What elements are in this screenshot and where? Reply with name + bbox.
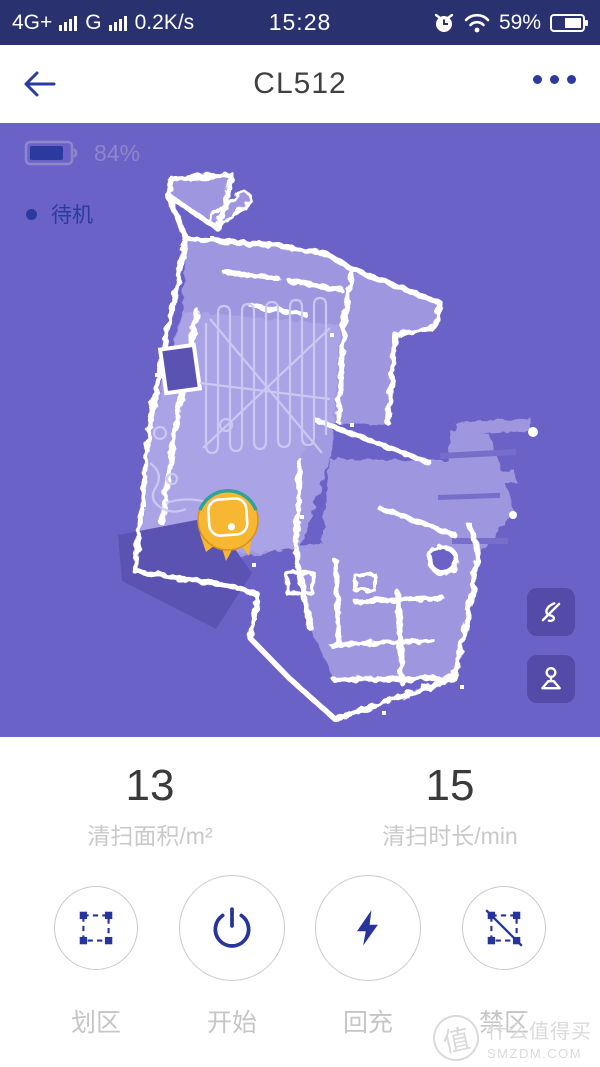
stat-duration: 15 清扫时长/min (300, 761, 600, 857)
duration-value: 15 (300, 761, 600, 811)
robot-battery-icon (24, 139, 80, 167)
wifi-icon (464, 13, 490, 33)
locate-robot-button[interactable] (527, 655, 575, 703)
duration-label: 清扫时长/min (300, 817, 600, 851)
action-forbidden-zone: 禁区 (436, 873, 572, 1039)
alarm-clock-icon (433, 12, 455, 34)
edit-off-icon (538, 599, 564, 625)
status-bar-right: 59% (433, 11, 588, 35)
action-bar: 划区 开始 回充 (0, 857, 600, 1039)
map-section: 84% 待机 (0, 123, 600, 737)
area-value: 13 (0, 761, 300, 811)
robot-battery-indicator: 84% (24, 139, 140, 167)
more-options-icon[interactable] (533, 75, 576, 84)
start-button[interactable] (179, 875, 285, 981)
battery-percent-label: 59% (499, 11, 541, 35)
lightning-icon (346, 906, 390, 950)
map-notch (430, 547, 456, 573)
robot-battery-percent: 84% (94, 140, 140, 167)
status-bar: 4G+ G 0.2K/s 15:28 59% (0, 0, 600, 45)
zone-button[interactable] (54, 886, 138, 970)
zone-icon (75, 907, 117, 949)
robot-status-label: 待机 (51, 199, 93, 229)
robot-vacuum-app: 4G+ G 0.2K/s 15:28 59% (0, 0, 600, 1067)
action-zone: 划区 (28, 873, 164, 1039)
forbidden-zone-label: 禁区 (479, 1003, 529, 1039)
start-label: 开始 (207, 1003, 257, 1039)
edit-map-off-button[interactable] (527, 588, 575, 636)
robot-status: 待机 (26, 199, 93, 229)
zone-label: 划区 (71, 1003, 121, 1039)
watermark-site: SMZDM.COM (487, 1046, 592, 1061)
area-label: 清扫面积/m² (0, 817, 300, 851)
recharge-button[interactable] (315, 875, 421, 981)
power-icon (207, 903, 257, 953)
forbidden-zone-button[interactable] (462, 886, 546, 970)
page-title: CL512 (0, 67, 600, 101)
status-dot (26, 209, 37, 220)
action-start: 开始 (164, 873, 300, 1039)
stat-area: 13 清扫面积/m² (0, 761, 300, 857)
recharge-label: 回充 (343, 1003, 393, 1039)
battery-icon (550, 13, 588, 33)
cleaning-stats: 13 清扫面积/m² 15 清扫时长/min (0, 737, 600, 857)
action-recharge: 回充 (300, 873, 436, 1039)
map-obstacle (160, 345, 200, 393)
locate-pin-icon (538, 666, 564, 692)
robot-marker[interactable] (198, 490, 258, 561)
header: CL512 (0, 45, 600, 123)
no-zone-icon (483, 907, 525, 949)
